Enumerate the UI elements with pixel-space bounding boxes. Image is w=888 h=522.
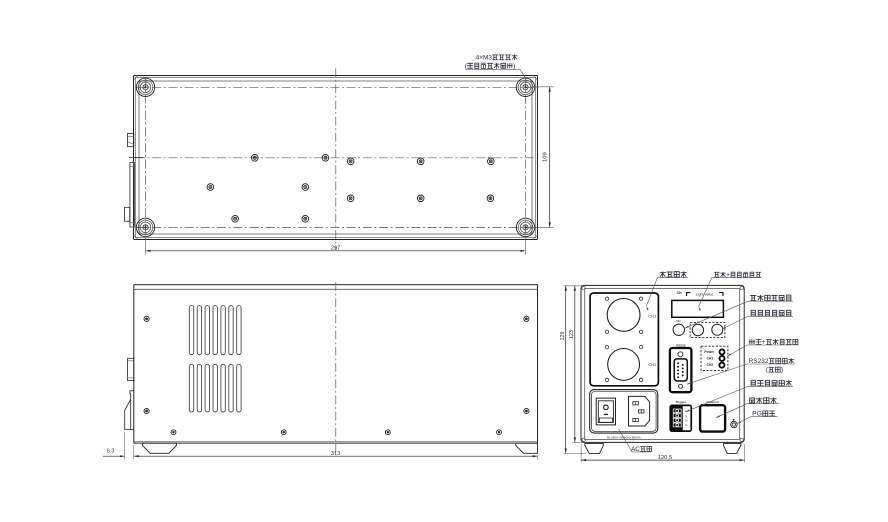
svg-text:CH1: CH1 xyxy=(707,357,714,361)
svg-text:1-: 1- xyxy=(685,414,687,418)
svg-text:CH: CH xyxy=(676,319,680,323)
svg-text:129: 129 xyxy=(560,332,566,341)
svg-text:Power: Power xyxy=(704,350,715,354)
svg-text:297: 297 xyxy=(331,246,341,252)
svg-text:Trigger: Trigger xyxy=(676,400,687,404)
svg-text:-: - xyxy=(717,319,718,323)
svg-text:2-: 2- xyxy=(685,423,687,427)
svg-text:6.3: 6.3 xyxy=(107,449,115,455)
svg-text:): ) xyxy=(781,367,783,374)
svg-text:CH2: CH2 xyxy=(648,362,657,367)
svg-text:CH2: CH2 xyxy=(707,363,714,367)
svg-text:CH1: CH1 xyxy=(648,314,657,319)
svg-text:2+: 2+ xyxy=(685,419,688,423)
svg-text:313: 313 xyxy=(331,451,341,457)
svg-text:CH: CH xyxy=(677,291,682,295)
svg-text:RS232: RS232 xyxy=(676,343,686,347)
svg-text:123: 123 xyxy=(569,330,575,339)
svg-text:120.5: 120.5 xyxy=(658,455,673,461)
svg-text:4×M3: 4×M3 xyxy=(476,54,493,61)
svg-text:109: 109 xyxy=(543,152,549,162)
svg-text:): ) xyxy=(513,63,515,70)
